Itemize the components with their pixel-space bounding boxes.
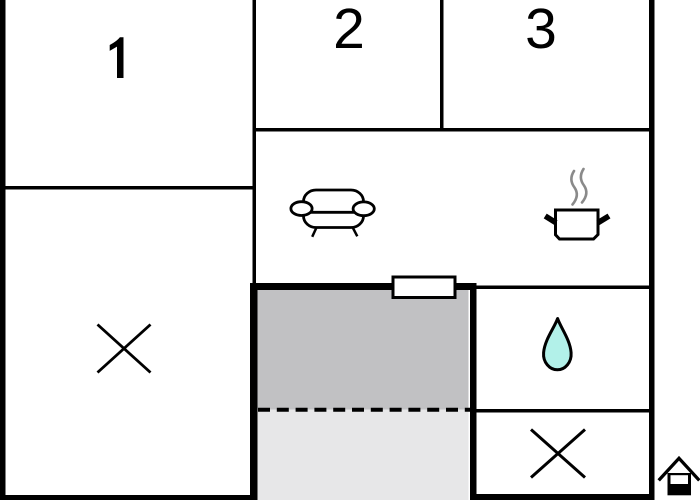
svg-text:2: 2 [333,0,365,61]
svg-text:3: 3 [525,0,557,61]
